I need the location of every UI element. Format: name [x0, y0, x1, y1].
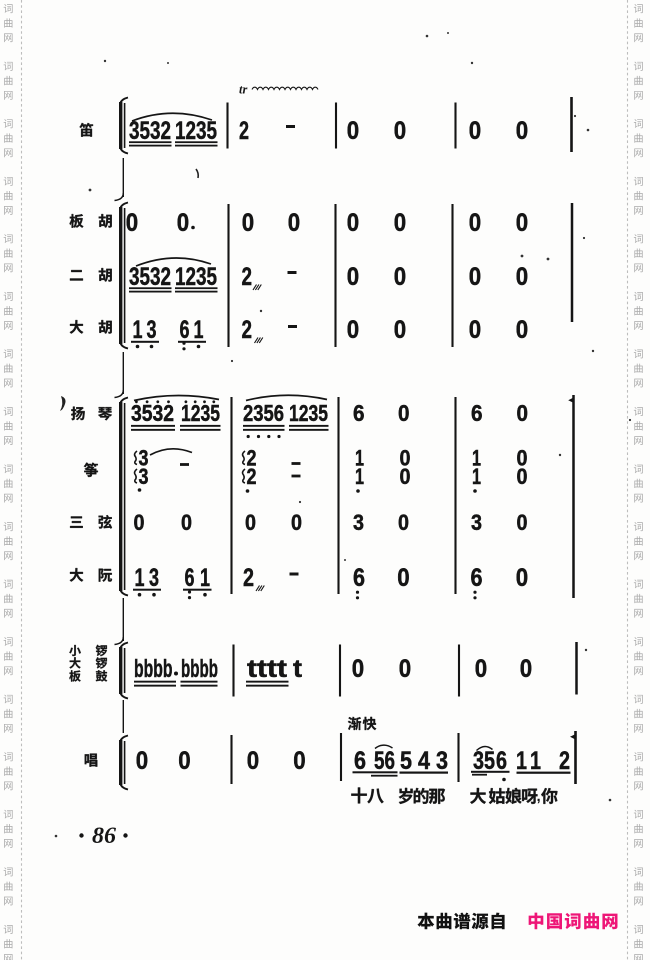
svg-text:3: 3 — [436, 747, 448, 775]
svg-text:6: 6 — [471, 564, 483, 592]
svg-text:3532: 3532 — [129, 263, 171, 291]
svg-text:56: 56 — [374, 747, 395, 775]
svg-text:0: 0 — [394, 209, 406, 237]
svg-text:0: 0 — [399, 655, 411, 683]
svg-text:0: 0 — [394, 263, 406, 291]
svg-text:2: 2 — [239, 117, 249, 145]
svg-text:3: 3 — [471, 510, 482, 535]
svg-text:t: t — [293, 655, 303, 683]
svg-text:0: 0 — [517, 510, 528, 535]
svg-text:3532: 3532 — [129, 117, 171, 145]
svg-text:0: 0 — [475, 655, 487, 683]
svg-text:3: 3 — [353, 510, 364, 535]
svg-text:6: 6 — [471, 400, 483, 426]
svg-text:0: 0 — [245, 510, 256, 535]
svg-text:3: 3 — [149, 564, 159, 592]
svg-text:0: 0 — [469, 209, 481, 237]
svg-text:0: 0 — [516, 209, 528, 237]
svg-text:1: 1 — [355, 464, 364, 489]
svg-text:0: 0 — [347, 209, 359, 237]
svg-text:0: 0 — [126, 209, 138, 237]
svg-text:6: 6 — [353, 564, 365, 592]
svg-text:0: 0 — [293, 747, 305, 775]
svg-text:2356: 2356 — [243, 400, 284, 426]
svg-text:tr: tr — [239, 83, 247, 97]
svg-text:0: 0 — [469, 117, 481, 145]
svg-text:0: 0 — [136, 747, 148, 775]
svg-text:0: 0 — [394, 117, 406, 145]
svg-text:5: 5 — [400, 747, 412, 775]
svg-text:1235: 1235 — [175, 263, 217, 291]
svg-text:6: 6 — [354, 747, 366, 775]
svg-text:,: , — [537, 788, 541, 805]
svg-text:2: 2 — [243, 564, 254, 592]
svg-text:0: 0 — [352, 655, 364, 683]
svg-text:1235: 1235 — [181, 400, 220, 426]
svg-text:0: 0 — [516, 117, 528, 145]
svg-text:3: 3 — [139, 464, 149, 489]
svg-text:0: 0 — [398, 400, 410, 426]
svg-text:6: 6 — [185, 564, 195, 592]
svg-text:0: 0 — [347, 117, 359, 145]
svg-text:0: 0 — [242, 209, 254, 237]
svg-text:1: 1 — [516, 747, 527, 775]
svg-text:0: 0 — [291, 510, 302, 535]
svg-text:6: 6 — [180, 316, 190, 344]
svg-text:2: 2 — [559, 747, 570, 775]
svg-text:2: 2 — [242, 316, 253, 344]
svg-text:0: 0 — [469, 316, 481, 344]
svg-text:3: 3 — [147, 316, 157, 344]
svg-text:0: 0 — [517, 464, 528, 489]
svg-text:0: 0 — [516, 564, 528, 592]
svg-text:0: 0 — [520, 655, 532, 683]
svg-text:1: 1 — [194, 316, 204, 344]
svg-text:4: 4 — [418, 747, 430, 775]
svg-text:0: 0 — [397, 564, 409, 592]
svg-text:1: 1 — [200, 564, 210, 592]
svg-text:0: 0 — [517, 400, 529, 426]
svg-text:86: 86 — [92, 823, 117, 848]
svg-text:0: 0 — [178, 747, 190, 775]
svg-text:0: 0 — [394, 316, 406, 344]
svg-text:0: 0 — [181, 510, 192, 535]
svg-text:bbbb: bbbb — [181, 655, 218, 683]
svg-text:3532: 3532 — [131, 400, 174, 426]
svg-text:0: 0 — [288, 209, 300, 237]
svg-text:1: 1 — [133, 316, 143, 344]
svg-text:0: 0 — [516, 263, 528, 291]
svg-text:0: 0 — [177, 209, 189, 237]
svg-text:1: 1 — [530, 747, 541, 775]
svg-text:2: 2 — [242, 263, 253, 291]
svg-text:1: 1 — [472, 464, 481, 489]
svg-text:2: 2 — [247, 464, 257, 489]
svg-text:0: 0 — [347, 263, 359, 291]
svg-text:tttt: tttt — [247, 655, 288, 683]
svg-text:1235: 1235 — [175, 117, 217, 145]
svg-text:6: 6 — [353, 400, 365, 426]
svg-text:0: 0 — [398, 510, 409, 535]
svg-text:0: 0 — [400, 464, 411, 489]
svg-text:0: 0 — [516, 316, 528, 344]
svg-text:bbbb: bbbb — [134, 655, 173, 683]
svg-text:0: 0 — [469, 263, 481, 291]
svg-text:1235: 1235 — [289, 400, 328, 426]
svg-text:1: 1 — [135, 564, 145, 592]
svg-text:0: 0 — [134, 510, 145, 535]
svg-text:0: 0 — [347, 316, 359, 344]
svg-text:0: 0 — [247, 747, 259, 775]
